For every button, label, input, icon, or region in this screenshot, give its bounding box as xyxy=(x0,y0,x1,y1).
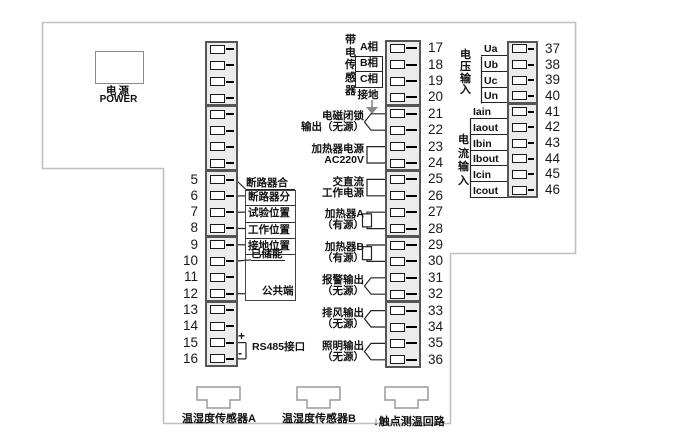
right-terminal-wire xyxy=(528,48,534,50)
right-terminal-number: 44 xyxy=(545,152,571,166)
function-label: 照明输出（无源） xyxy=(284,341,364,363)
middle-terminal-wire xyxy=(406,260,417,262)
middle-terminal-screw xyxy=(390,355,405,364)
bracket-square xyxy=(367,179,385,195)
left-terminal-screw xyxy=(210,45,225,54)
middle-terminal-number: 31 xyxy=(428,271,454,285)
left-terminal-number: 11 xyxy=(172,270,198,284)
power-indicator-box xyxy=(95,51,144,84)
right-terminal-screw xyxy=(512,76,527,85)
right-terminal-screw xyxy=(512,60,527,69)
middle-terminal-number: 35 xyxy=(428,336,454,350)
right-strip-section xyxy=(507,103,538,198)
connector-a-shape xyxy=(197,387,240,408)
right-terminal-wire xyxy=(528,95,534,97)
middle-terminal-wire xyxy=(406,211,417,213)
middle-terminal-number: 22 xyxy=(428,123,454,137)
left-terminal-number: 14 xyxy=(172,319,198,333)
bracket-brace xyxy=(365,311,386,327)
middle-terminal-number: 33 xyxy=(428,304,454,318)
right-terminal-number: 45 xyxy=(545,167,571,181)
middle-terminal-wire xyxy=(406,178,417,180)
voltage-port-label: Uc xyxy=(481,73,507,88)
right-terminal-screw xyxy=(512,139,527,148)
middle-terminal-screw xyxy=(390,77,405,86)
wiring-diagram-panel: 电源 POWER 断路器合 断路器分 试验位置 工作位置 接地位置 已储能 公共… xyxy=(0,0,693,447)
connector-c-shape xyxy=(385,387,428,408)
middle-terminal-screw xyxy=(390,142,405,151)
left-terminal-screw xyxy=(210,322,225,331)
middle-terminal-number: 20 xyxy=(428,90,454,104)
left-terminal-number: 12 xyxy=(172,287,198,301)
current-port-label: Icin xyxy=(470,167,507,182)
left-terminal-wire xyxy=(226,48,234,50)
left-terminal-wire xyxy=(226,130,234,132)
left-terminal-wire xyxy=(226,146,234,148)
left-terminal-number: 10 xyxy=(172,254,198,268)
middle-terminal-screw xyxy=(390,60,405,69)
middle-terminal-wire xyxy=(406,359,417,361)
bracket-square xyxy=(367,147,385,163)
left-terminal-wire xyxy=(226,260,234,262)
voltage-port-label: Ua xyxy=(481,41,507,56)
right-terminal-screw xyxy=(512,123,527,132)
left-terminal-screw xyxy=(210,338,225,347)
right-terminal-number: 46 xyxy=(545,183,571,197)
left-terminal-number: 15 xyxy=(172,336,198,350)
middle-terminal-wire xyxy=(406,293,417,295)
middle-terminal-number: 26 xyxy=(428,189,454,203)
right-terminal-screw xyxy=(512,91,527,100)
middle-terminal-screw xyxy=(390,208,405,217)
middle-terminal-screw xyxy=(390,224,405,233)
function-label: 加热器A（有源） xyxy=(284,209,364,231)
bracket-brace xyxy=(365,114,386,130)
left-terminal-wire xyxy=(226,325,234,327)
left-terminal-screw xyxy=(210,240,225,249)
right-terminal-wire xyxy=(528,142,534,144)
bracket-brace xyxy=(365,343,386,359)
left-terminal-screw xyxy=(210,191,225,200)
function-label: 排风输出（无源） xyxy=(284,308,364,330)
middle-terminal-screw xyxy=(390,126,405,135)
left-terminal-screw xyxy=(210,305,225,314)
label-phase-b: B相 xyxy=(355,56,383,73)
left-terminal-number: 7 xyxy=(172,205,198,219)
left-terminal-wire xyxy=(226,276,234,278)
middle-terminal-wire xyxy=(406,129,417,131)
left-terminal-screw xyxy=(210,224,225,233)
connector-b-label: 温湿度传感器B xyxy=(279,410,359,426)
middle-terminal-screw xyxy=(390,241,405,250)
current-port-label: Iain xyxy=(470,104,507,119)
middle-terminal-number: 27 xyxy=(428,205,454,219)
left-terminal-screw xyxy=(210,61,225,70)
middle-terminal-wire xyxy=(406,228,417,230)
middle-terminal-screw xyxy=(390,323,405,332)
ground-arrow-icon xyxy=(366,107,378,114)
middle-terminal-number: 23 xyxy=(428,140,454,154)
right-terminal-number: 39 xyxy=(545,73,571,87)
function-label: 加热器电源AC220V xyxy=(284,144,364,166)
middle-terminal-number: 29 xyxy=(428,238,454,252)
middle-terminal-wire xyxy=(406,96,417,98)
left-terminal-wire xyxy=(226,81,234,83)
middle-terminal-wire xyxy=(406,64,417,66)
label-phase-a: A相 xyxy=(355,42,383,53)
left-terminal-screw xyxy=(210,208,225,217)
function-label: 电磁闭锁输出（无源） xyxy=(284,111,364,133)
left-terminal-wire xyxy=(226,227,234,229)
left-terminal-number: 6 xyxy=(172,189,198,203)
middle-terminal-screw xyxy=(390,339,405,348)
middle-terminal-screw xyxy=(390,109,405,118)
function-label: 报警输出（无源） xyxy=(284,275,364,297)
left-terminal-wire xyxy=(226,211,234,213)
middle-terminal-number: 25 xyxy=(428,172,454,186)
middle-terminal-number: 28 xyxy=(428,222,454,236)
left-terminal-wire xyxy=(226,195,234,197)
middle-terminal-screw xyxy=(390,44,405,53)
middle-terminal-number: 34 xyxy=(428,320,454,334)
left-terminal-screw xyxy=(210,159,225,168)
right-terminal-number: 43 xyxy=(545,136,571,150)
right-terminal-wire xyxy=(528,173,534,175)
function-label: 交直流工作电源 xyxy=(284,177,364,199)
right-terminal-wire xyxy=(528,126,534,128)
right-terminal-wire xyxy=(528,158,534,160)
middle-terminal-wire xyxy=(406,244,417,246)
left-terminal-number: 5 xyxy=(172,173,198,187)
current-port-label: Icout xyxy=(470,183,507,198)
right-terminal-screw xyxy=(512,170,527,179)
middle-terminal-wire xyxy=(406,342,417,344)
label-energy-stored: 已储能 xyxy=(251,249,285,261)
right-terminal-number: 37 xyxy=(545,42,571,56)
middle-terminal-number: 19 xyxy=(428,74,454,88)
left-terminal-screw xyxy=(210,257,225,266)
bracket-brace xyxy=(365,278,386,294)
voltage-port-label: Ub xyxy=(481,57,507,72)
function-label: 加热器B（有源） xyxy=(284,242,364,264)
connector-b-shape xyxy=(297,387,340,408)
right-terminal-wire xyxy=(528,79,534,81)
current-port-label: Ibin xyxy=(470,136,507,151)
middle-terminal-screw xyxy=(390,175,405,184)
voltage-input-group-label: 电压输入 xyxy=(459,50,472,97)
middle-terminal-number: 17 xyxy=(428,41,454,55)
label-phase-c: C相 xyxy=(355,71,383,88)
left-terminal-screw xyxy=(210,94,225,103)
middle-terminal-screw xyxy=(390,257,405,266)
right-terminal-screw xyxy=(512,107,527,116)
middle-terminal-screw xyxy=(390,290,405,299)
left-terminal-screw xyxy=(210,77,225,86)
middle-terminal-wire xyxy=(406,277,417,279)
left-terminal-wire xyxy=(226,358,234,360)
left-terminal-number: 13 xyxy=(172,303,198,317)
middle-terminal-wire xyxy=(406,326,417,328)
left-terminal-screw xyxy=(210,175,225,184)
middle-terminal-number: 21 xyxy=(428,107,454,121)
left-terminal-wire xyxy=(226,179,234,181)
power-label-en: POWER xyxy=(85,94,152,105)
middle-terminal-number: 30 xyxy=(428,254,454,268)
middle-terminal-number: 18 xyxy=(428,58,454,72)
left-terminal-screw xyxy=(210,354,225,363)
right-terminal-wire xyxy=(528,189,534,191)
right-terminal-screw xyxy=(512,44,527,53)
right-terminal-screw xyxy=(512,186,527,195)
right-terminal-number: 38 xyxy=(545,58,571,72)
voltage-port-label: Un xyxy=(481,88,507,103)
middle-terminal-screw xyxy=(390,191,405,200)
middle-terminal-number: 24 xyxy=(428,156,454,170)
left-terminal-wire xyxy=(226,64,234,66)
left-terminal-wire xyxy=(226,97,234,99)
left-terminal-screw xyxy=(210,126,225,135)
left-terminal-screw xyxy=(210,110,225,119)
left-terminal-wire xyxy=(226,293,234,295)
right-terminal-wire xyxy=(528,111,534,113)
middle-terminal-screw xyxy=(390,93,405,102)
middle-terminal-screw xyxy=(390,273,405,282)
left-terminal-number: 9 xyxy=(172,238,198,252)
right-terminal-screw xyxy=(512,154,527,163)
left-terminal-number: 8 xyxy=(172,221,198,235)
connector-a-label: 温湿度传感器A xyxy=(179,410,259,426)
middle-terminal-wire xyxy=(406,310,417,312)
middle-terminal-screw xyxy=(390,159,405,168)
middle-terminal-wire xyxy=(406,162,417,164)
right-terminal-number: 40 xyxy=(545,89,571,103)
current-port-label: Iaout xyxy=(470,120,507,135)
middle-terminal-wire xyxy=(406,146,417,148)
left-terminal-wire xyxy=(226,244,234,246)
left-terminal-number: 16 xyxy=(172,352,198,366)
middle-terminal-wire xyxy=(406,113,417,115)
left-terminal-screw xyxy=(210,273,225,282)
left-terminal-wire xyxy=(226,309,234,311)
left-terminal-screw xyxy=(210,142,225,151)
middle-terminal-wire xyxy=(406,195,417,197)
middle-terminal-number: 36 xyxy=(428,353,454,367)
connector-c-label: ↓触点测温回路 xyxy=(365,413,453,429)
rs485-plus-sign: + xyxy=(238,331,245,342)
right-terminal-number: 41 xyxy=(545,105,571,119)
right-terminal-wire xyxy=(528,64,534,66)
left-terminal-wire xyxy=(226,162,234,164)
middle-terminal-number: 32 xyxy=(428,287,454,301)
left-terminal-wire xyxy=(226,113,234,115)
current-port-label: Ibout xyxy=(470,151,507,166)
current-input-group-label: 电流输入 xyxy=(457,134,470,188)
label-ground: 接地 xyxy=(352,90,384,101)
left-terminal-wire xyxy=(226,342,234,344)
left-terminal-screw xyxy=(210,289,225,298)
rs485-minus-sign: - xyxy=(238,348,242,359)
right-terminal-number: 42 xyxy=(545,120,571,134)
middle-terminal-screw xyxy=(390,306,405,315)
middle-terminal-wire xyxy=(406,80,417,82)
middle-terminal-wire xyxy=(406,47,417,49)
